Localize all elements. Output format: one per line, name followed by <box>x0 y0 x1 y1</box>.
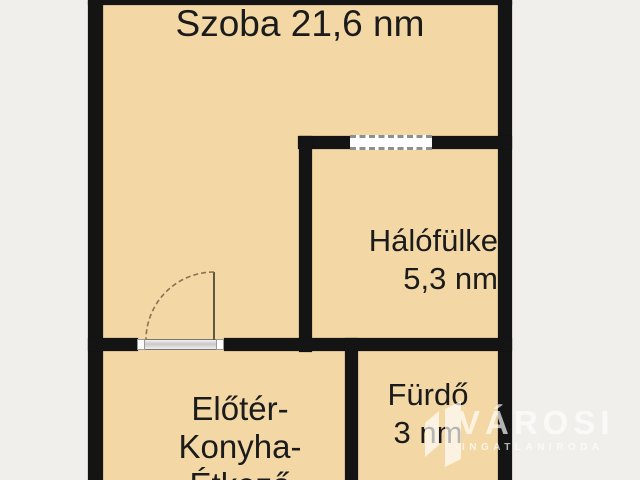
eloter-line1: Előtér- <box>110 390 370 428</box>
halofulke-name: Hálófülke <box>320 222 498 260</box>
eloter-line2: Konyha- <box>110 428 370 466</box>
door-jamb-left <box>137 339 145 350</box>
room-label-halofulke: Hálófülke 5,3 nm <box>320 222 501 298</box>
eloter-line3: Étkező <box>110 466 370 480</box>
room-label-eloter-konyha: Előtér- Konyha- Étkező <box>110 390 370 480</box>
middle-wall-right-of-door <box>224 338 512 351</box>
door-swing-icon <box>145 271 215 341</box>
window-icon <box>350 135 432 150</box>
watermark-brand: VÁROSI <box>458 404 615 442</box>
halofulke-area: 5,3 nm <box>320 260 498 298</box>
szoba-label-text: Szoba 21,6 nm <box>176 3 425 44</box>
szoba-halofulke-divider-wall <box>299 136 312 352</box>
watermark-tagline: INGATLANIRODA <box>462 442 604 453</box>
floorplan-canvas: Szoba 21,6 nm Hálófülke 5,3 nm Előtér- K… <box>0 0 640 480</box>
room-label-szoba: Szoba 21,6 nm <box>88 2 512 46</box>
door-jamb-right <box>216 339 224 350</box>
middle-wall-left-of-door <box>88 338 138 351</box>
outer-wall-left <box>88 0 103 480</box>
